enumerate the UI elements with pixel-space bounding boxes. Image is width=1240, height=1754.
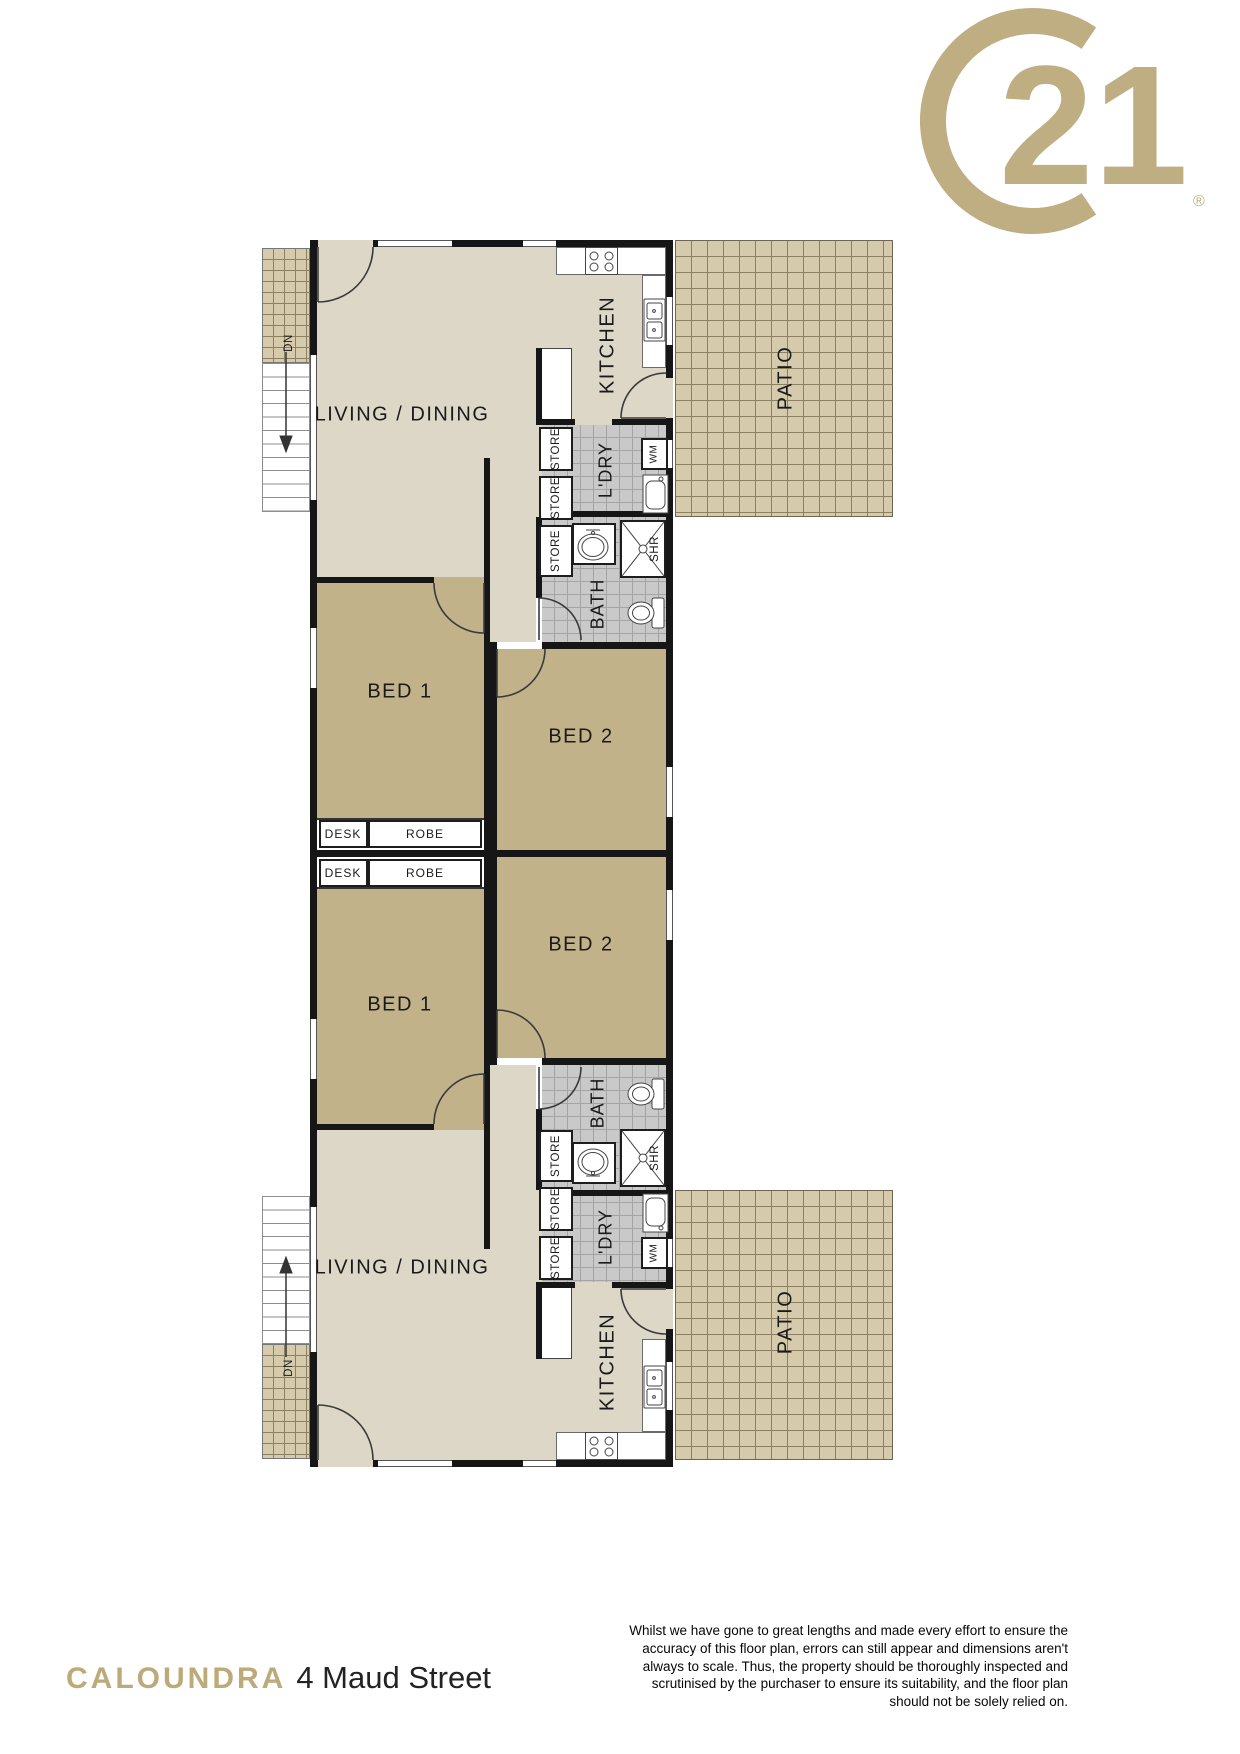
label-shr-top: SHR [649, 536, 661, 562]
label-desk-bottom: DESK [325, 866, 362, 880]
label-dn-top: DN [283, 334, 295, 352]
wall-bed1-bed2-bottom [484, 857, 497, 1065]
label-patio-top: PATIO [775, 346, 798, 411]
label-shr-bottom: SHR [649, 1145, 661, 1171]
wall-bath-bed2-top [542, 642, 666, 649]
pantry-bottom [540, 1282, 572, 1359]
page-title: CALOUNDRA4 Maud Street [66, 1660, 491, 1696]
disclaimer-line: should not be solely relied on. [548, 1693, 1068, 1711]
room-bed2-top [497, 649, 666, 850]
window-left-bed1-bottom [310, 1019, 317, 1079]
label-robe-bottom: ROBE [406, 866, 444, 880]
door-gap-bed1-bottom [434, 1124, 484, 1130]
disclaimer-line: always to scale. Thus, the property shou… [548, 1658, 1068, 1676]
floor-plan-page: 21 ® [0, 0, 1240, 1754]
label-store-1-top: STORE [550, 428, 562, 470]
vanity-top [572, 523, 616, 565]
wall-party-mid [310, 850, 673, 857]
label-kitchen-bottom: KITCHEN [597, 1313, 620, 1411]
label-bed1-top: BED 1 [367, 681, 432, 704]
label-living-top: LIVING / DINING [315, 404, 490, 427]
label-bath-top: BATH [588, 579, 609, 630]
label-dn-bottom: DN [283, 1359, 295, 1377]
window-bottom-b [523, 1460, 556, 1467]
label-wm-bottom: WM [649, 1244, 660, 1263]
kitchen-counter-bottom-b [642, 1339, 666, 1432]
label-kitchen-top: KITCHEN [597, 296, 620, 394]
window-top-b [523, 240, 556, 247]
stairs-bottom [262, 1196, 310, 1344]
hallway-top [484, 425, 536, 642]
label-laundry-bottom: L'DRY [596, 1209, 617, 1265]
wall-pantry-top [536, 348, 542, 425]
century21-logo: 21 ® [915, 6, 1215, 241]
window-top-a [378, 240, 452, 247]
door-gap-patio-bottom [666, 1289, 673, 1329]
registered-mark: ® [1193, 193, 1205, 210]
window-right-bed2-bottom [666, 890, 673, 940]
window-left-bed1-top [310, 628, 317, 688]
disclaimer-line: accuracy of this floor plan, errors can … [548, 1640, 1068, 1658]
wall-bath-bed2-bottom [542, 1058, 666, 1065]
label-patio-bottom: PATIO [775, 1290, 798, 1355]
door-gap-entry-top [318, 240, 373, 247]
disclaimer: Whilst we have gone to great lengths and… [548, 1622, 1068, 1711]
door-gap-patio-top [666, 378, 673, 418]
wall-pantry-bottom [536, 1282, 542, 1359]
robe-strip-line-bottom [317, 887, 484, 889]
label-bed1-bottom: BED 1 [367, 994, 432, 1017]
label-wm-top: WM [649, 445, 660, 464]
door-gap-entry-bottom [318, 1460, 373, 1467]
stove-bottom [585, 1432, 618, 1460]
wall-ldry-b-bottom [612, 1282, 666, 1288]
wall-living-bed1-top [310, 577, 434, 583]
pantry-top [540, 348, 572, 425]
wall-hall-top [484, 458, 490, 642]
label-laundry-top: L'DRY [596, 442, 617, 498]
kitchen-counter-top-b [642, 275, 666, 368]
window-bottom-a [378, 1460, 452, 1467]
label-living-bottom: LIVING / DINING [315, 1257, 490, 1280]
logo-number: 21 [999, 31, 1188, 221]
stairs-top [262, 363, 310, 512]
label-store-1-bottom: STORE [550, 1135, 562, 1177]
wall-living-bed1-bottom [310, 1124, 434, 1130]
wall-ldry-bath-top [573, 511, 666, 517]
label-bed2-bottom: BED 2 [548, 934, 613, 957]
hallway-bottom [484, 1065, 536, 1282]
disclaimer-line: Whilst we have gone to great lengths and… [548, 1622, 1068, 1640]
label-store-3-top: STORE [550, 530, 562, 572]
vanity-bottom [572, 1142, 616, 1184]
label-store-3-bottom: STORE [550, 1237, 562, 1279]
door-gap-bed1-top [434, 577, 484, 583]
room-bed2-bottom [497, 857, 666, 1058]
street-address: 4 Maud Street [296, 1660, 491, 1695]
label-store-2-bottom: STORE [550, 1188, 562, 1230]
label-bed2-top: BED 2 [548, 726, 613, 749]
wall-ldry-b-top [612, 419, 666, 425]
window-right-bed2-top [666, 767, 673, 817]
label-store-2-top: STORE [550, 477, 562, 519]
window-right-kitchen-bottom [666, 1362, 673, 1410]
window-right-kitchen-top [666, 297, 673, 345]
label-bath-bottom: BATH [588, 1078, 609, 1129]
disclaimer-line: scrutinised by the purchaser to ensure i… [548, 1675, 1068, 1693]
wall-hall-bottom [484, 1065, 490, 1249]
wall-bed1-bed2-top [484, 642, 497, 850]
suburb-name: CALOUNDRA [66, 1662, 286, 1695]
label-desk-top: DESK [325, 827, 362, 841]
stove-top [585, 247, 618, 275]
window-left-living-bottom [310, 1207, 317, 1352]
window-left-living-top [310, 355, 317, 500]
wall-ldry-bath-bottom [573, 1190, 666, 1196]
label-robe-top: ROBE [406, 827, 444, 841]
